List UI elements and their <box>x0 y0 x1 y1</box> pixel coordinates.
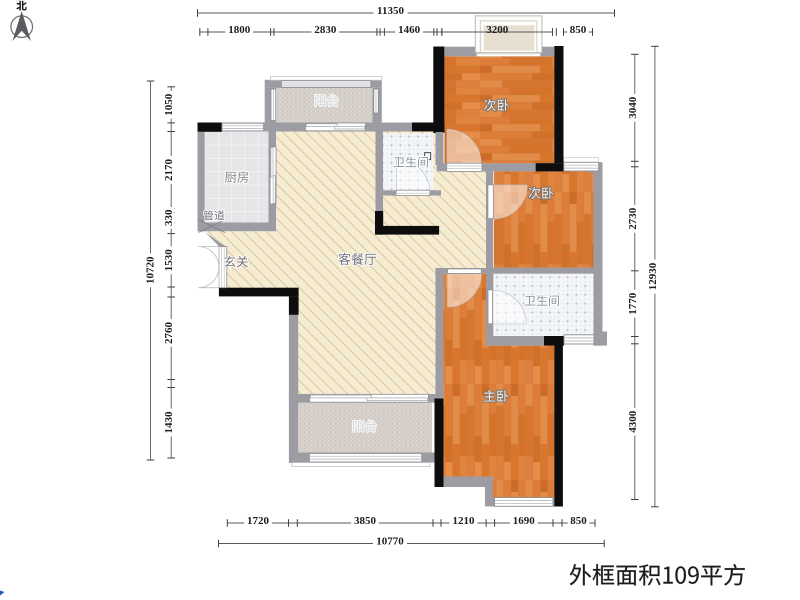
svg-text:1050: 1050 <box>163 93 175 116</box>
svg-text:1210: 1210 <box>453 515 476 527</box>
svg-text:850: 850 <box>570 24 587 36</box>
svg-text:2730: 2730 <box>627 207 639 230</box>
svg-text:3040: 3040 <box>627 96 639 119</box>
svg-text:2170: 2170 <box>163 159 175 182</box>
svg-text:850: 850 <box>570 515 587 527</box>
svg-text:2830: 2830 <box>314 24 337 36</box>
svg-text:1720: 1720 <box>247 515 270 527</box>
svg-text:1690: 1690 <box>513 515 536 527</box>
svg-text:11350: 11350 <box>377 5 404 17</box>
svg-text:330: 330 <box>163 209 175 226</box>
svg-text:1770: 1770 <box>627 292 639 315</box>
svg-text:3200: 3200 <box>486 24 509 36</box>
svg-text:10720: 10720 <box>145 256 157 284</box>
svg-text:12930: 12930 <box>647 262 659 290</box>
svg-text:1430: 1430 <box>163 411 175 434</box>
svg-text:4300: 4300 <box>627 410 639 433</box>
svg-text:2760: 2760 <box>163 322 175 345</box>
svg-text:10770: 10770 <box>376 536 404 548</box>
svg-text:1460: 1460 <box>398 24 421 36</box>
svg-text:1530: 1530 <box>163 249 175 272</box>
svg-text:3850: 3850 <box>354 515 377 527</box>
svg-text:1800: 1800 <box>228 24 251 36</box>
